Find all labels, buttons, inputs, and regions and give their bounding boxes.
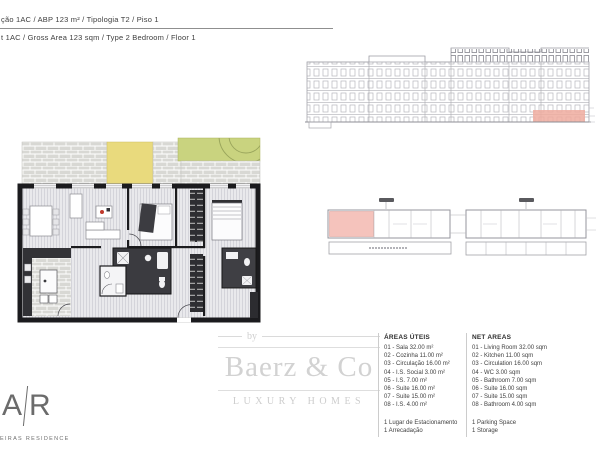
legend-en-item: 08 - Bathroom 4.00 sqm xyxy=(472,401,556,409)
baerz-watermark: by Baerz & Co LUXURY HOMES xyxy=(218,331,380,407)
elevation-attic-windows xyxy=(451,49,589,62)
legend-en-item: 06 - Suite 16.00 sqm xyxy=(472,385,556,393)
legend-en-title: NET AREAS xyxy=(472,334,556,341)
legend-en-item: 03 - Circulation 16.00 sqm xyxy=(472,360,556,368)
legend-pt-item: 06 - Suite 16.00 m² xyxy=(384,385,468,393)
unit-title-pt: ção 1AC / ABP 123 m² / Tipologia T2 / Pi… xyxy=(1,15,159,24)
legend-pt-item: 03 - Circulação 16.00 m² xyxy=(384,360,468,368)
legend-pt-item: 02 - Cozinha 11.00 m² xyxy=(384,352,468,360)
watermark-by: by xyxy=(242,331,262,342)
bathroom-2 xyxy=(222,248,256,288)
logo-letter-r: R xyxy=(29,389,51,423)
logo-monogram: A R xyxy=(2,386,51,426)
logo-letter-a: A xyxy=(2,389,22,423)
legend-en-item: 01 - Living Room 32.00 sqm xyxy=(472,344,556,352)
watermark-by-row: by xyxy=(218,331,380,341)
terrace-pavers-left xyxy=(22,142,107,186)
elevation-unit-highlight xyxy=(533,110,585,122)
legend-pt-extra: 1 Lugar de Estacionamento xyxy=(384,419,468,427)
suite-2-bed xyxy=(212,200,242,240)
apartment-floor-plan xyxy=(14,134,264,328)
watermark-line xyxy=(218,336,242,337)
block-connector xyxy=(450,215,466,233)
wardrobe-upper xyxy=(190,190,203,242)
watermark-line xyxy=(262,336,380,337)
unit-title-en: t 1AC / Gross Area 123 sqm / Type 2 Bedr… xyxy=(1,33,196,42)
elevation-right-annex xyxy=(589,108,595,122)
terrace-skylight-yellow xyxy=(107,142,153,186)
legend-pt-item: 04 - I.S. Social 3.00 m² xyxy=(384,369,468,377)
cabinet xyxy=(70,194,82,218)
legend-pt-item: 05 - I.S. 7.00 m² xyxy=(384,377,468,385)
residence-name: EIRAS RESIDENCE xyxy=(0,436,70,442)
right-extension xyxy=(586,218,596,230)
floor-key-plan xyxy=(313,194,600,266)
storage-niche xyxy=(250,292,258,318)
terrace-pavers-right xyxy=(181,161,260,186)
legend-areas-uteis: ÁREAS ÚTEIS 01 - Sala 32.00 m² 02 - Cozi… xyxy=(384,334,468,435)
block-label-left xyxy=(379,198,394,202)
apartment xyxy=(20,184,258,323)
terrace-pavers-mid xyxy=(153,142,182,186)
garden-green xyxy=(178,138,260,161)
unit-highlight xyxy=(330,212,374,237)
legend-pt-item: 07 - Suite 15.00 m² xyxy=(384,393,468,401)
legend-divider xyxy=(378,333,379,437)
legend-net-areas: NET AREAS 01 - Living Room 32.00 sqm 02 … xyxy=(472,334,556,435)
legend-en-item: 05 - Bathroom 7.00 sqm xyxy=(472,377,556,385)
block-label-right xyxy=(519,198,534,202)
legend-pt-item: 01 - Sala 32.00 m² xyxy=(384,344,468,352)
watermark-rule xyxy=(218,390,380,391)
legend-en-extras: 1 Parking Space 1 Storage xyxy=(472,419,556,435)
elevation-entry-steps xyxy=(309,122,331,128)
logo-divider-bar xyxy=(23,386,28,426)
legend-pt-extras: 1 Lugar de Estacionamento 1 Arrecadação xyxy=(384,419,468,435)
watermark-rule xyxy=(218,347,380,348)
residence-logo: A R xyxy=(2,386,51,426)
watermark-tagline: LUXURY HOMES xyxy=(218,396,380,407)
legend-pt-title: ÁREAS ÚTEIS xyxy=(384,334,468,341)
terrace xyxy=(22,134,264,186)
building-elevation xyxy=(303,42,595,136)
wc-social xyxy=(100,266,126,296)
legend-pt-extra: 1 Arrecadação xyxy=(384,427,468,435)
legend-pt-item: 08 - I.S. 4.00 m² xyxy=(384,401,468,409)
legend-en-item: 04 - WC 3.00 sqm xyxy=(472,369,556,377)
title-divider xyxy=(0,28,333,29)
watermark-brand: Baerz & Co xyxy=(218,350,380,384)
media-unit xyxy=(96,206,112,218)
legend-en-extra: 1 Storage xyxy=(472,427,556,435)
legend-en-item: 02 - Kitchen 11.00 sqm xyxy=(472,352,556,360)
dining-set xyxy=(23,206,59,236)
wardrobe-lower xyxy=(190,254,203,312)
legend-en-item: 07 - Suite 15.00 sqm xyxy=(472,393,556,401)
legend-en-extra: 1 Parking Space xyxy=(472,419,556,427)
